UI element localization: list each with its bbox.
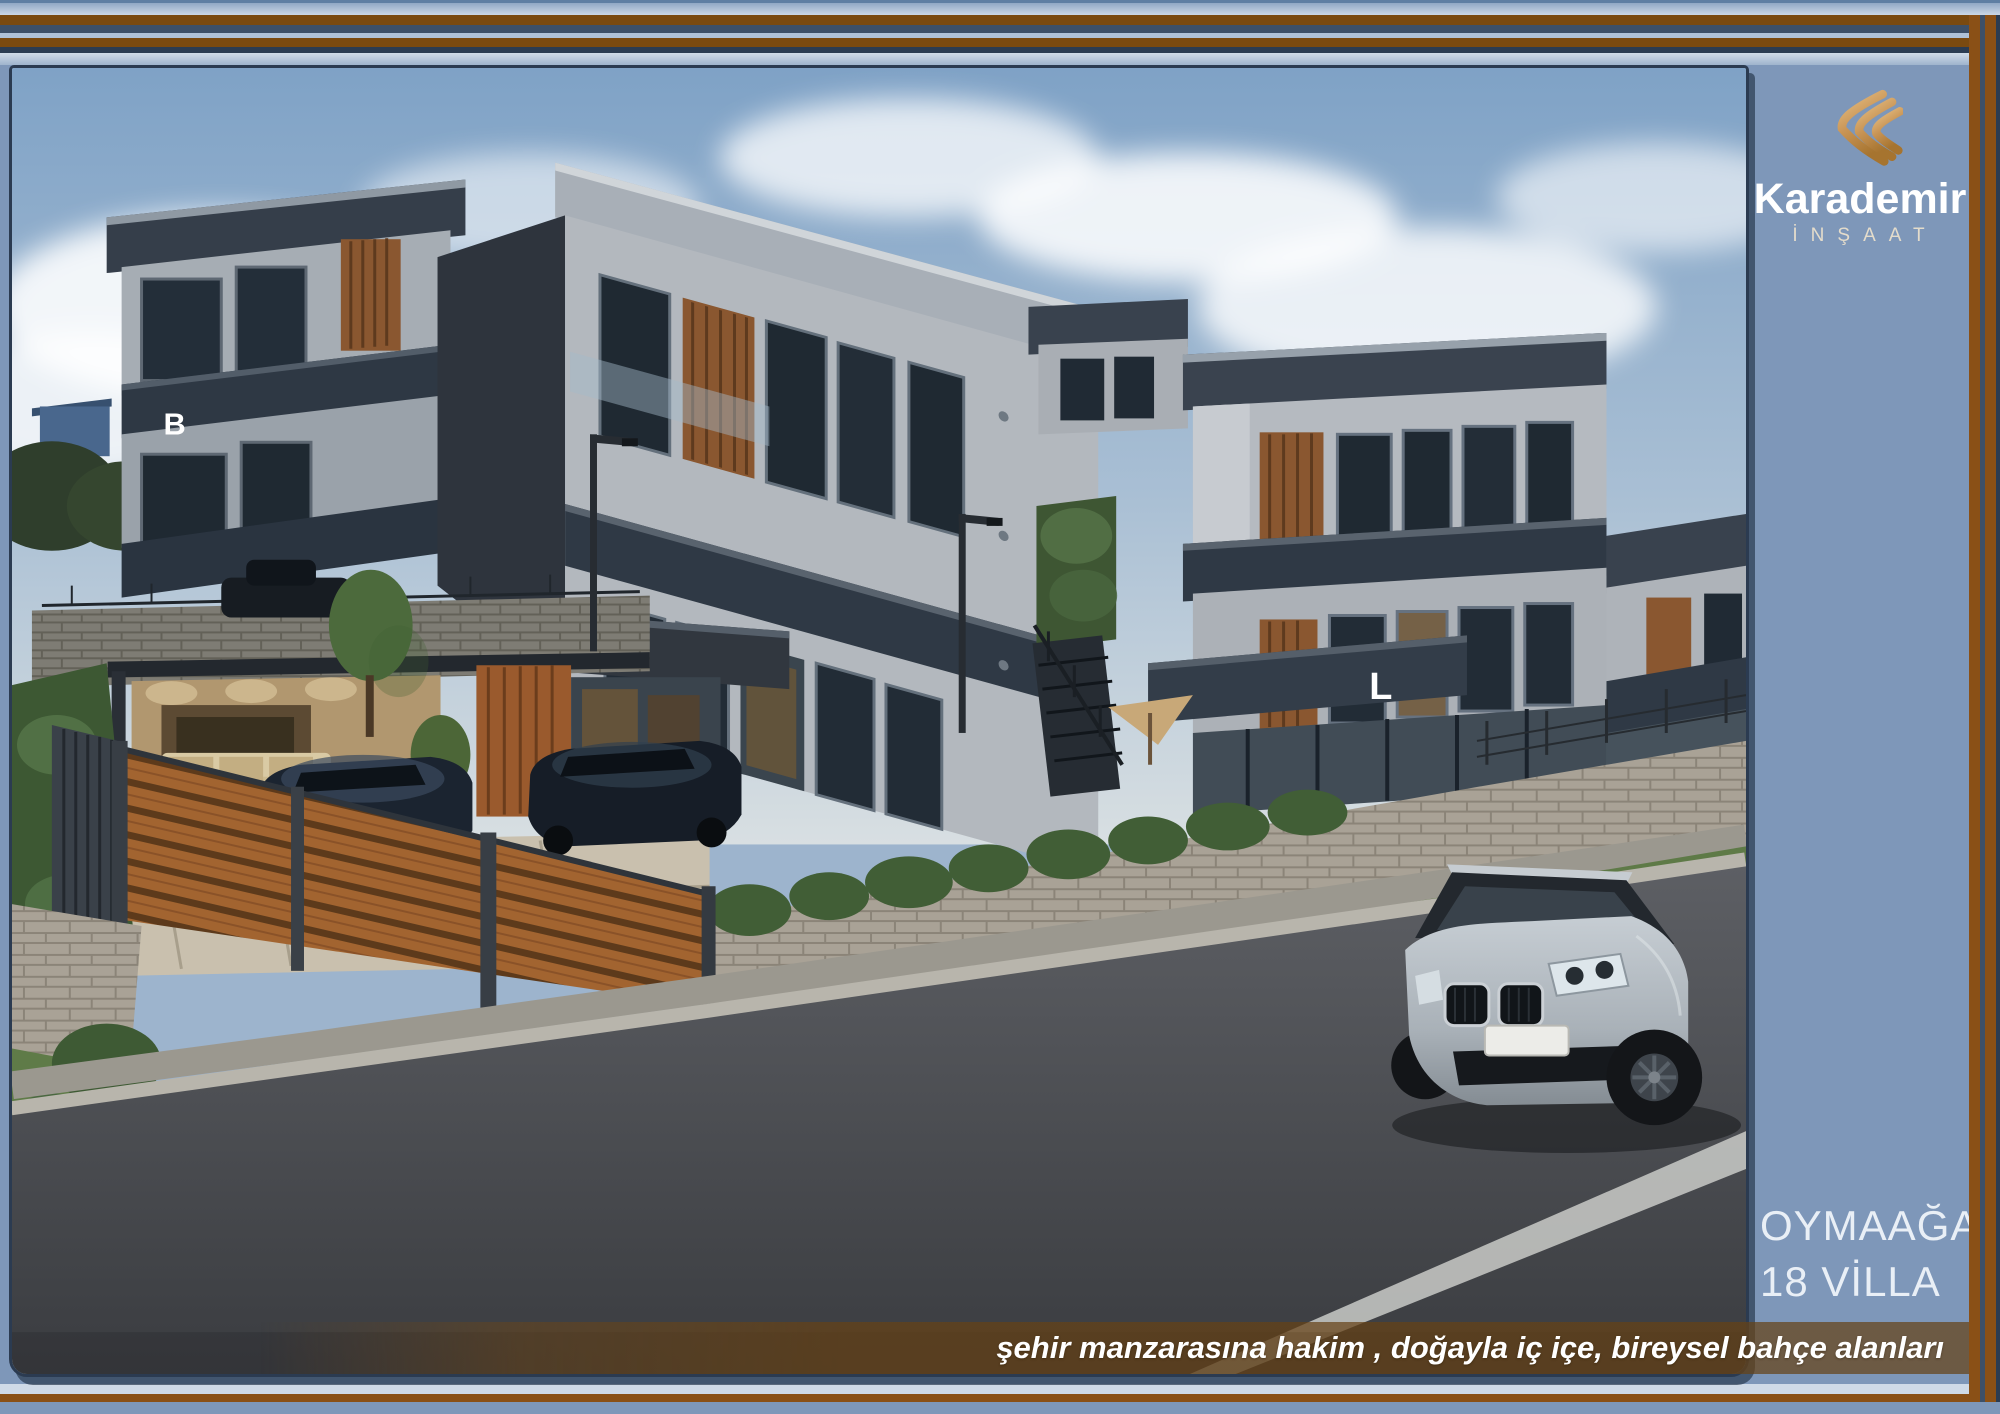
top-stripe-4 — [0, 53, 2000, 65]
company-logo: Karademir İNŞAAT — [1749, 84, 1971, 247]
company-division: İNŞAAT — [1749, 225, 1971, 247]
slide: B — [0, 0, 2000, 1414]
rendering-scene: B — [12, 68, 1746, 1374]
right-edge-stripes — [1969, 15, 2000, 1402]
caption-bar: şehir manzarasına hakim , doğayla iç içe… — [0, 1322, 2000, 1374]
villa-l-label: L — [1369, 666, 1392, 708]
bottom-stripe-brown — [0, 1394, 2000, 1402]
top-stripe-brown-1 — [0, 15, 2000, 25]
villa-rendering-image: B — [9, 65, 1749, 1377]
project-units: 18 VİLLA — [1760, 1254, 1975, 1310]
bottom-stripe-light — [0, 1384, 2000, 1394]
top-stripe-brown-2 — [0, 38, 2000, 47]
villa-b: B — [107, 179, 466, 597]
dark-car-2 — [528, 741, 741, 855]
project-title: OYMAAĞAÇ 18 VİLLA — [1760, 1198, 1975, 1310]
top-stripe-slate — [0, 25, 2000, 33]
karademir-logo-icon — [1817, 84, 1903, 170]
company-name: Karademir — [1749, 177, 1971, 222]
top-stripe-2 — [0, 3, 2000, 15]
caption-text: şehir manzarasına hakim , doğayla iç içe… — [996, 1330, 1944, 1366]
project-location: OYMAAĞAÇ — [1760, 1198, 1975, 1254]
villa-b-label: B — [163, 406, 185, 441]
